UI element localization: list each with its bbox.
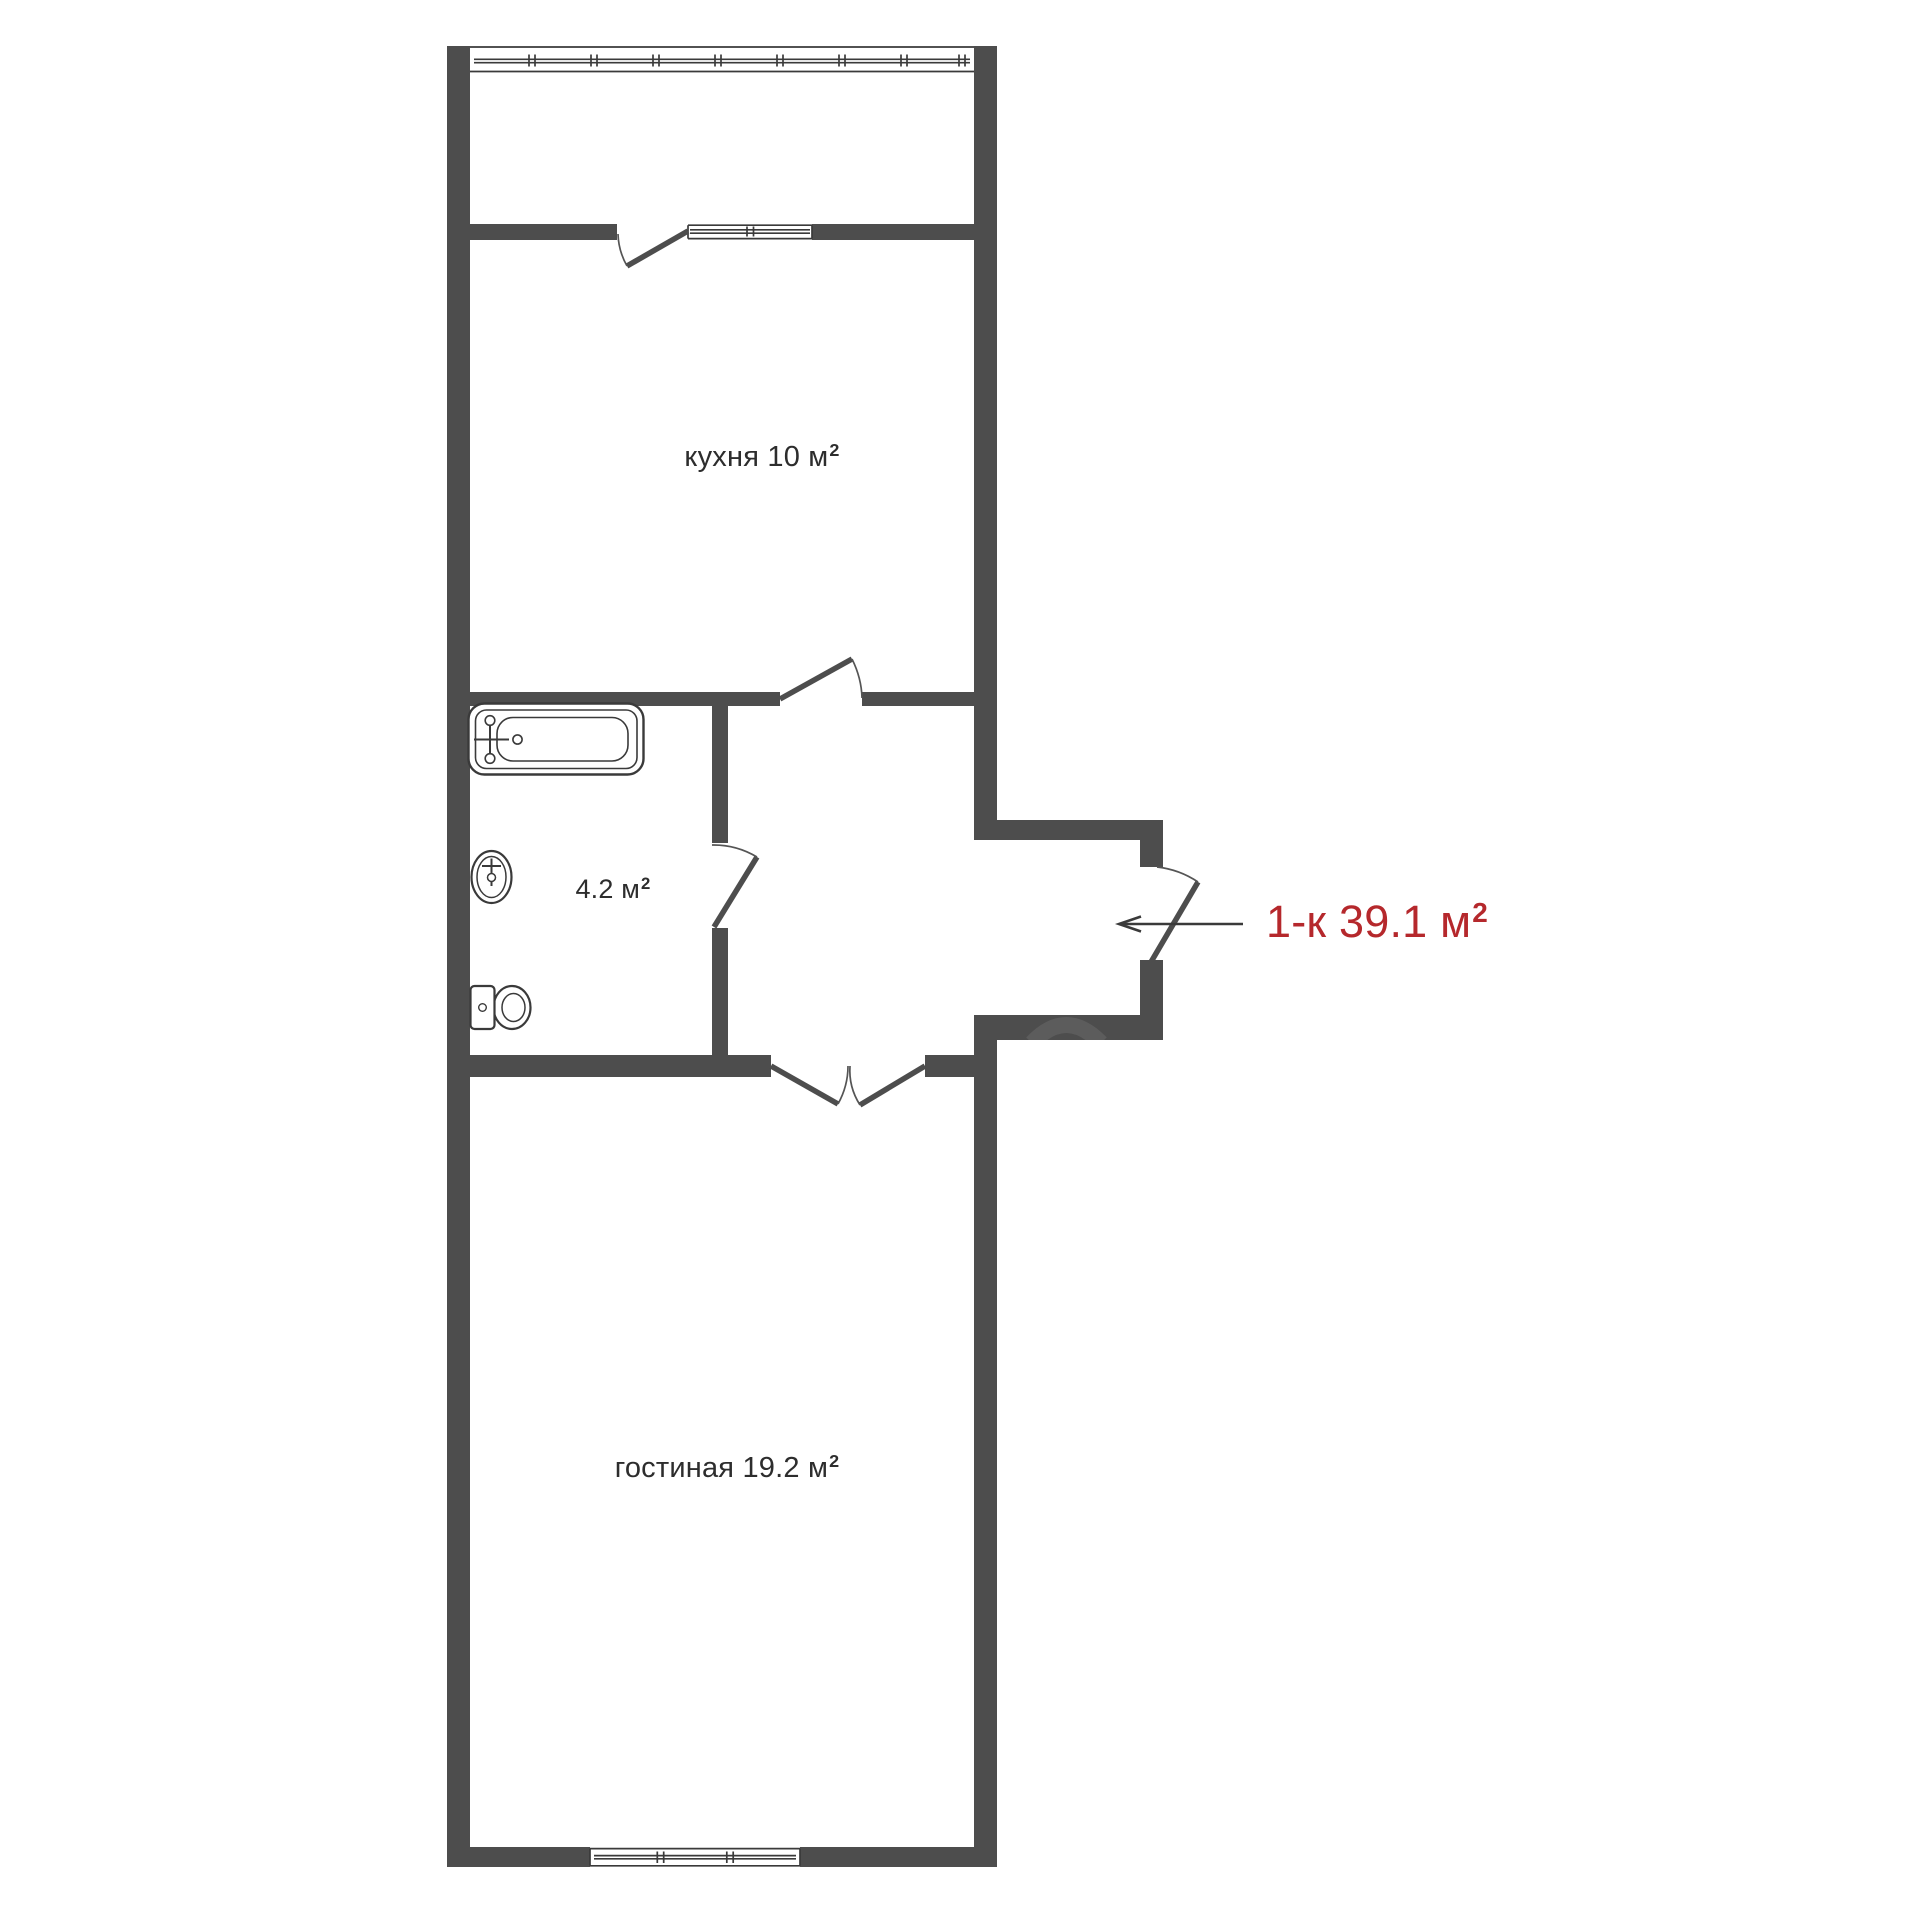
wall-right-upper: [974, 46, 997, 840]
living-room-double-door: [771, 1066, 925, 1105]
apartment-area-label: 1-к 39.1 м2: [1266, 897, 1488, 947]
walls: [447, 46, 1163, 1867]
entrance-arrow-icon: [1119, 917, 1243, 932]
window-bottom-icon: [590, 1849, 800, 1866]
apartment-area-text: 1-к 39.1 м: [1266, 896, 1471, 947]
living-room-label: гостиная 19.2 м2: [577, 1452, 877, 1485]
kitchen-label-sup: 2: [829, 440, 839, 460]
entry-right-wall-lower: [1140, 960, 1163, 1015]
wall-bathroom-upper: [712, 706, 728, 843]
wall-right-lower: [974, 1015, 997, 1867]
bathroom-label: 4.2 м2: [513, 874, 713, 905]
living-room-label-sup: 2: [829, 1451, 839, 1471]
balcony-door: [618, 231, 688, 266]
apartment-area-sup: 2: [1472, 897, 1488, 928]
wall-balcony-divider-left: [470, 224, 617, 240]
entry-top-wall: [974, 820, 1163, 840]
toilet-icon: [471, 986, 531, 1029]
wall-balcony-divider-right: [812, 224, 974, 240]
living-room-label-text: гостиная 19.2 м: [615, 1452, 828, 1484]
wall-left: [447, 46, 470, 1867]
kitchen-label: кухня 10 м2: [612, 441, 912, 474]
bathroom-label-sup: 2: [641, 874, 651, 893]
floor-plan-drawing: [0, 0, 1920, 1920]
bathtub-icon: [469, 704, 644, 775]
wall-bottom-right: [800, 1847, 997, 1867]
entrance-door: [1151, 867, 1198, 962]
wall-living-top-left: [470, 1055, 771, 1077]
window-balcony-icon: [688, 225, 812, 238]
kitchen-label-text: кухня 10 м: [684, 441, 828, 473]
bathroom-door: [712, 845, 757, 927]
sink-icon: [472, 851, 512, 903]
wall-bathroom-lower: [712, 928, 728, 1055]
wall-living-top-right: [925, 1055, 997, 1077]
kitchen-door: [780, 659, 862, 699]
window-top-icon: [470, 47, 974, 72]
wall-kitchen-bottom-right: [862, 692, 974, 706]
bathroom-label-text: 4.2 м: [575, 874, 640, 904]
wall-bottom-left: [447, 1847, 590, 1867]
entry-right-wall-upper: [1140, 820, 1163, 867]
floor-plan: кухня 10 м2 4.2 м2 гостиная 19.2 м2 1-к …: [0, 0, 1920, 1920]
